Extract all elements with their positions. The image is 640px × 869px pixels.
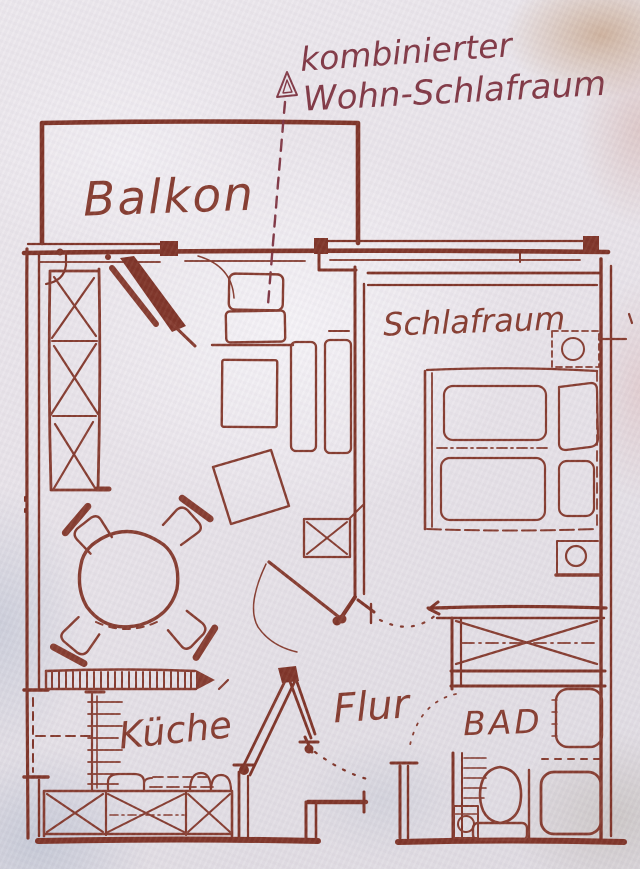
floor-plan-sketch: Balkon kombinierter Wohn-Schlafraum [0,0,640,869]
kitchen-label: Küche [117,703,234,758]
bathroom-label: BAD [462,702,543,744]
sink-basin-icon [211,775,231,791]
radiator-hatched-icon [46,670,228,691]
small-table-icon [222,360,278,427]
drain-unit-icon [454,806,478,838]
door-leaf-swing-icon [254,562,347,652]
chair-icon [61,505,113,558]
ink-smudge [105,254,234,346]
shower-tray-icon [529,770,601,839]
scanned-paper-background: Balkon kombinierter Wohn-Schlafraum [0,0,640,869]
balcony-label: Balkon [82,167,256,228]
living-room [49,254,437,669]
entrance-swing-dashes [315,752,367,779]
kitchen-counter-icon [44,773,232,836]
dashed-direction-arrow-icon [268,72,297,305]
chair-icon [167,606,220,659]
closet-x-icon [456,621,597,664]
bedroom-label: Schlafraum [382,299,565,343]
washbasin-icon [552,689,602,747]
shelf-rectangles-icon [291,331,351,453]
nightstand-lamp-icon [556,541,601,575]
mattress-icon [444,386,546,440]
wardrobe-icon [49,269,109,490]
rotated-square-table-icon [213,450,289,524]
bath-door-swing-dashes [410,694,456,745]
chair-icon [52,616,105,669]
bedroom-door-swing-dashes [380,614,437,627]
dining-table-icon [79,532,177,630]
pillow-icon [559,383,598,450]
mattress-icon [441,458,545,520]
sideboard-icon [212,274,293,345]
hallway-label: Flur [332,681,413,732]
stove-icon [108,774,144,791]
entrance-door-open-icon [234,666,318,775]
double-bed-icon [425,368,598,530]
pillow-icon [559,461,594,516]
sink-basin-icon [190,773,211,791]
chair-icon [158,494,211,547]
